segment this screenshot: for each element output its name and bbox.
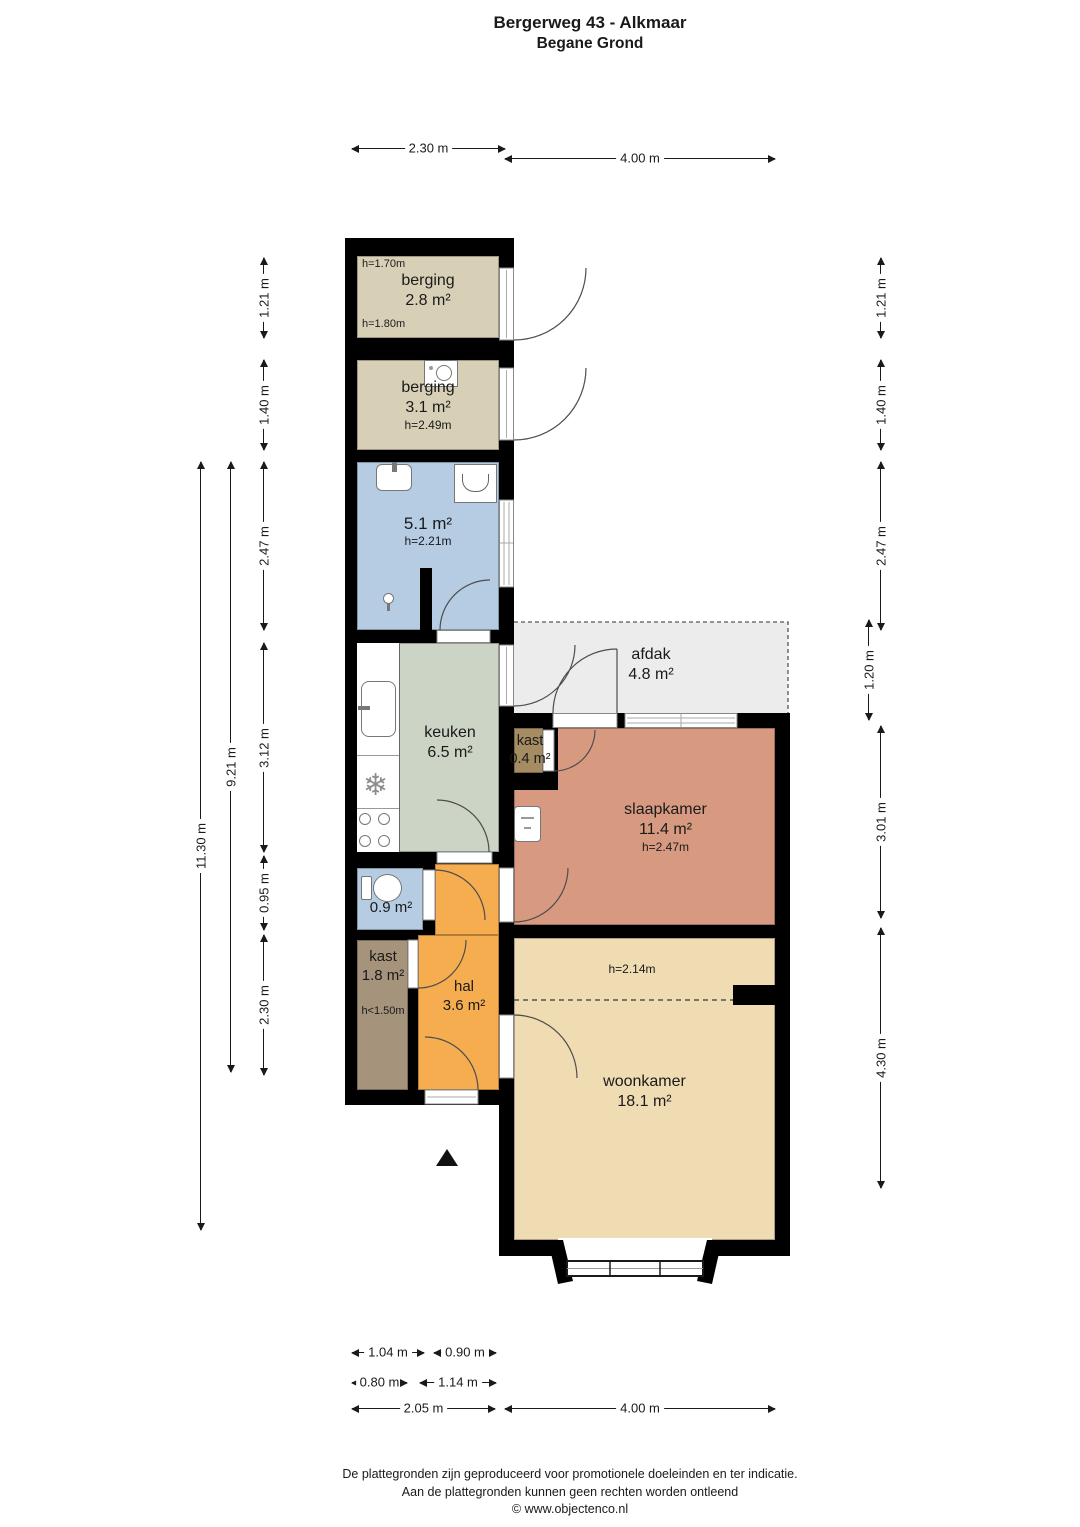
dim-bottom-3a: 2.05 m	[352, 1408, 495, 1409]
berging-1-height-top: h=1.70m	[362, 258, 405, 270]
dim-left-3: 2.47 m	[263, 462, 264, 630]
dim-bottom-1a: 1.04 m	[352, 1352, 424, 1353]
dim-right-2: 1.40 m	[880, 360, 881, 450]
toilet-bowl-icon	[373, 874, 402, 902]
wall-badkamer-stub	[420, 568, 432, 630]
page-title-block: Bergerweg 43 - Alkmaar Begane Grond	[110, 12, 1070, 54]
counter-divider	[357, 808, 399, 809]
keuken-label: keuken 6.5 m²	[398, 723, 502, 763]
hal-label: hal 3.6 m²	[428, 978, 500, 1016]
dim-right-5: 3.01 m	[880, 726, 881, 918]
woonkamer-label: woonkamer 18.1 m²	[514, 1072, 775, 1112]
berging-1-height-bottom: h=1.80m	[362, 318, 405, 330]
shower-tray-icon	[454, 464, 497, 503]
page-subtitle: Begane Grond	[110, 34, 1070, 54]
north-arrow-icon	[436, 1149, 458, 1166]
kast-hal-height: h<1.50m	[356, 1005, 410, 1017]
page-title: Bergerweg 43 - Alkmaar	[110, 12, 1070, 34]
dim-top-1: 2.30 m	[352, 148, 505, 149]
shower-icon	[383, 593, 394, 604]
dim-left-2: 1.40 m	[263, 360, 264, 450]
dim-right-1: 1.21 m	[880, 258, 881, 338]
fridge-icon: ❄	[363, 768, 388, 803]
footer-disclaimer: De plattegronden zijn geproduceerd voor …	[100, 1466, 1040, 1519]
room-hal-upper	[435, 864, 499, 935]
footer-line-1: De plattegronden zijn geproduceerd voor …	[100, 1466, 1040, 1484]
toilet-icon	[361, 876, 372, 900]
dim-bottom-1b: 0.90 m	[434, 1352, 496, 1353]
footer-line-2: Aan de plattegronden kunnen geen rechten…	[100, 1484, 1040, 1502]
dim-left-6: 2.30 m	[263, 935, 264, 1075]
wall-woonkamer-stub	[733, 985, 775, 1005]
dim-left-total-2: 11.30 m	[200, 462, 201, 1230]
footer-line-3: © www.objectenco.nl	[100, 1501, 1040, 1519]
boiler-icon	[514, 806, 541, 842]
stove-icon	[359, 813, 397, 849]
badkamer-label: 5.1 m² h=2.21m	[357, 513, 499, 549]
dim-left-total-1: 9.21 m	[230, 462, 231, 1072]
dim-left-1: 1.21 m	[263, 258, 264, 338]
bath-sink-icon	[376, 464, 412, 491]
dim-left-5: 0.95 m	[263, 856, 264, 930]
dim-top-2: 4.00 m	[505, 158, 775, 159]
berging-1-label: berging 2.8 m²	[357, 271, 499, 311]
floorplan-page: Bergerweg 43 - Alkmaar Begane Grond	[0, 0, 1080, 1527]
dim-left-4: 3.12 m	[263, 643, 264, 852]
kast-slaapkamer-label: kast 0.4 m²	[492, 732, 568, 768]
woonkamer-height-label: h=2.14m	[557, 962, 707, 977]
toilet-label: 0.9 m²	[359, 899, 423, 918]
dim-right-3: 2.47 m	[880, 462, 881, 630]
slaapkamer-label: slaapkamer 11.4 m² h=2.47m	[556, 800, 775, 855]
dim-bottom-2b: 1.14 m	[420, 1382, 496, 1383]
afdak-label: afdak 4.8 m²	[514, 645, 788, 685]
dim-right-4: 1.20 m	[868, 620, 869, 720]
dim-right-6: 4.30 m	[880, 928, 881, 1188]
counter-divider	[357, 755, 399, 756]
kast-hal-label: kast 1.8 m²	[352, 948, 414, 986]
dim-bottom-3b: 4.00 m	[505, 1408, 775, 1409]
dim-bottom-2a: 0.80 m	[352, 1382, 407, 1383]
kitchen-sink-icon	[361, 681, 396, 737]
berging-2-label: berging 3.1 m² h=2.49m	[357, 378, 499, 433]
